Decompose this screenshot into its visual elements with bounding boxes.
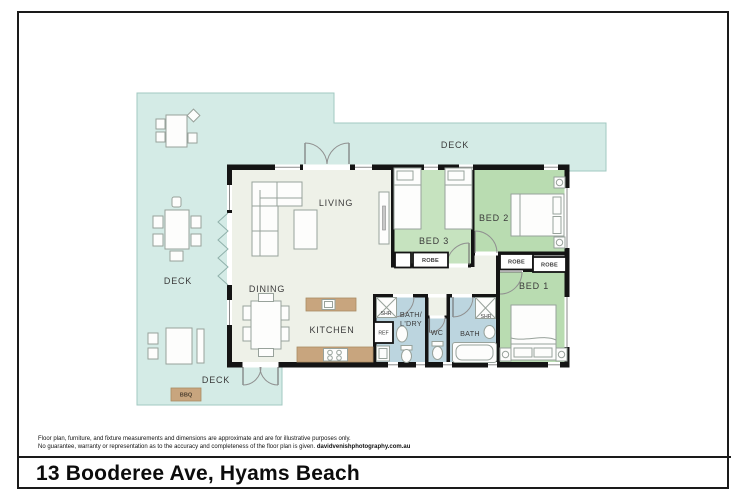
disclaimer-text: Floor plan, furniture, and fixture measu… [38, 436, 410, 451]
kitchen-counter [297, 347, 373, 362]
disclaimer-line1: Floor plan, furniture, and fixture measu… [38, 436, 410, 444]
robe-bed1-a-label: ROBE [508, 260, 525, 266]
bbq-label: BBQ [180, 393, 193, 399]
property-address-title: 13 Booderee Ave, Hyams Beach [36, 462, 360, 486]
room-label-deck-top: DECK [441, 140, 469, 150]
wc-fixtures [432, 342, 443, 360]
kitchen-island [306, 298, 356, 311]
photography-credit: davidvenishphotography.com.au [317, 444, 411, 450]
room-label-bath: BATH [460, 329, 480, 338]
disclaimer-line2: No guarantee, warranty or representation… [38, 444, 410, 452]
room-label-wc: WC [431, 328, 444, 337]
room-label-kitchen: KITCHEN [309, 325, 354, 335]
room-label-bed2: BED 2 [479, 213, 509, 223]
footer-divider [17, 456, 731, 458]
room-label-bed1: BED 1 [519, 281, 549, 291]
robe-bed1-b-label: ROBE [541, 263, 558, 269]
floorplan-page: BBQ [0, 0, 750, 500]
room-label-deck-bottom: DECK [202, 375, 230, 385]
room-label-deck-left: DECK [164, 276, 192, 286]
room-label-bed3: BED 3 [419, 236, 449, 246]
tv-unit [379, 192, 389, 244]
room-label-bath-ldry-2: L'DRY [400, 319, 422, 328]
room-label-living: LIVING [319, 198, 353, 208]
floor-plan-drawing: BBQ [0, 0, 750, 500]
robe-bed3-label: ROBE [422, 258, 439, 264]
coffee-table [294, 210, 317, 249]
label-shr-bath: SHR [481, 314, 492, 320]
room-label-dining: DINING [249, 284, 285, 294]
room-label-bath-ldry-1: BATH/ [400, 310, 422, 319]
label-shr-ldry: SHR [381, 311, 392, 317]
label-ref: REF [378, 331, 388, 337]
bbq: BBQ [171, 388, 201, 401]
